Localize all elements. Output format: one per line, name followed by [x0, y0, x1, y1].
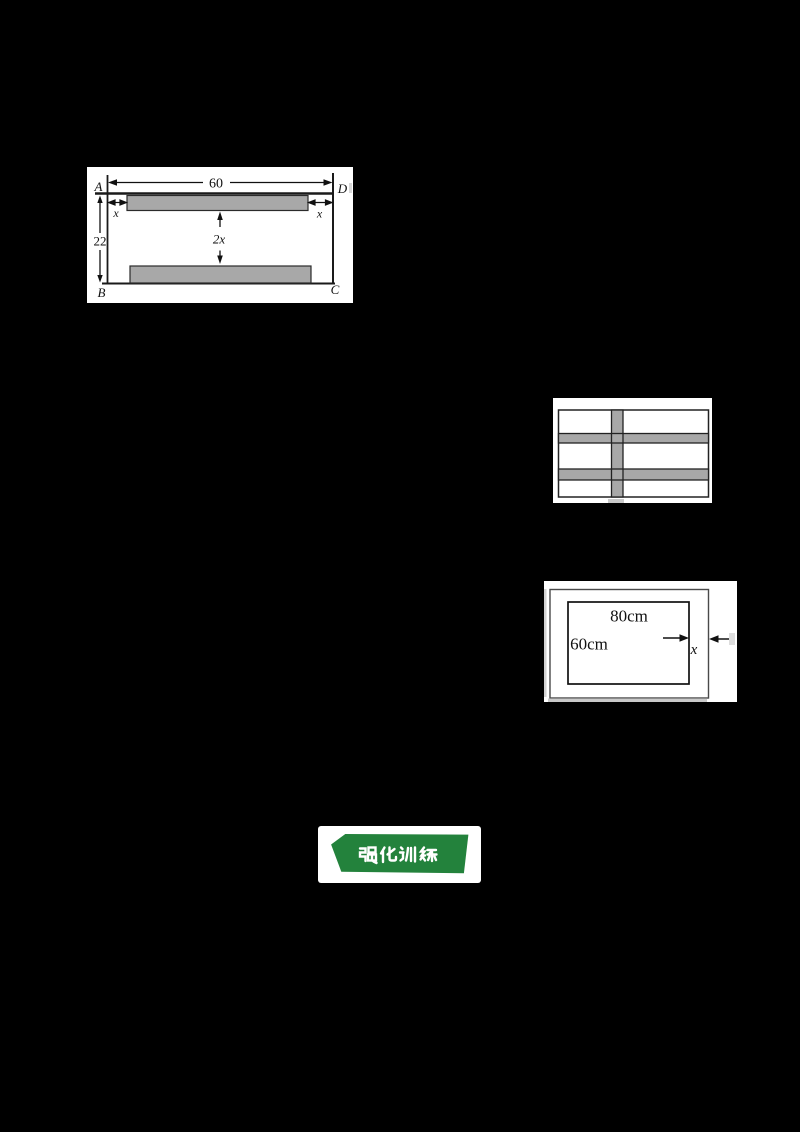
svg-text:C: C	[331, 282, 340, 297]
svg-text:D: D	[337, 181, 348, 196]
svg-text:22: 22	[94, 234, 107, 249]
svg-text:A: A	[94, 179, 103, 194]
svg-text:60: 60	[209, 177, 223, 192]
svg-text:80cm: 80cm	[610, 607, 648, 626]
svg-text:x: x	[112, 206, 119, 220]
svg-text:60cm: 60cm	[570, 635, 608, 654]
svg-text:B: B	[98, 285, 106, 300]
svg-text:x: x	[316, 207, 323, 221]
svg-text:x: x	[690, 642, 698, 658]
svg-text:2x: 2x	[213, 232, 226, 247]
